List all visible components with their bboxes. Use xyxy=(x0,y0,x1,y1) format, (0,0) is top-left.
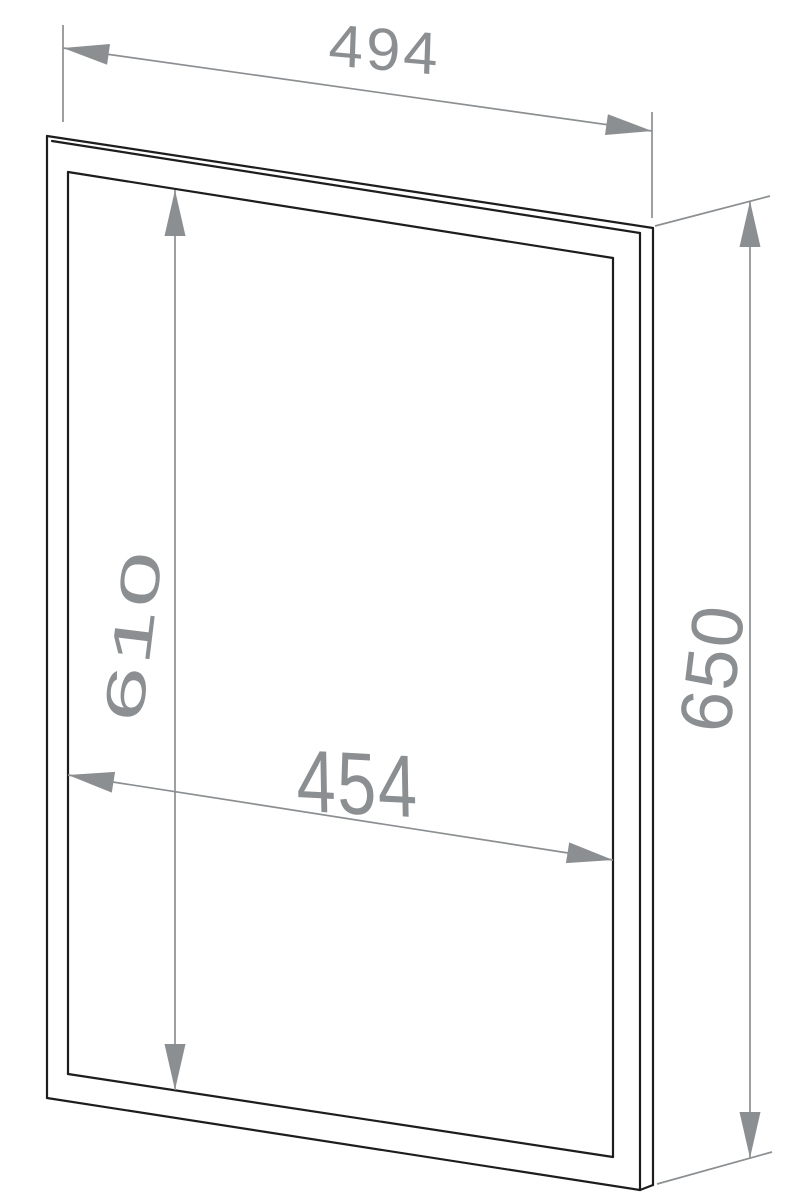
dimension-outer-width: 494 xyxy=(62,11,654,218)
dimension-inner-width: 454 xyxy=(66,731,614,870)
arrowhead-right xyxy=(566,842,615,870)
arrowhead-top xyxy=(740,201,761,247)
frame-top-front-edge xyxy=(52,141,640,233)
frame-bottom-edge xyxy=(47,1098,640,1190)
dimension-label-inner-height: 610 xyxy=(93,546,175,725)
dimension-label-outer-height: 650 xyxy=(665,600,761,737)
dimension-label-outer-width: 494 xyxy=(328,11,442,87)
arrowhead-left xyxy=(66,765,115,793)
arrowhead-top xyxy=(165,190,186,236)
dimension-inner-height: 610 xyxy=(93,190,186,1090)
frame-bottom-right-depth-edge xyxy=(640,1185,653,1190)
arrowhead-bottom xyxy=(740,1112,761,1158)
arrowhead-bottom xyxy=(165,1044,186,1090)
dimension-label-inner-width: 454 xyxy=(296,731,420,836)
extension-line-bottom xyxy=(657,1152,772,1184)
arrowhead-right xyxy=(605,114,653,141)
dimension-outer-height: 650 xyxy=(655,196,772,1184)
dimension-diagram-page: 494 650 610 454 xyxy=(0,0,802,1200)
frame-dimension-drawing: 494 650 610 454 xyxy=(0,0,802,1200)
arrowhead-left xyxy=(62,38,110,65)
